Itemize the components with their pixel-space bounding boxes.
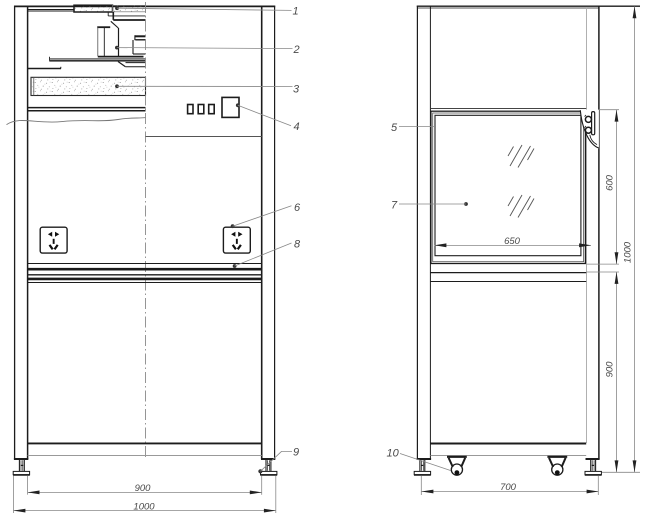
svg-text:1000: 1000 (133, 501, 155, 512)
svg-text:900: 900 (135, 483, 152, 494)
svg-text:1000: 1000 (623, 241, 634, 263)
svg-text:9: 9 (293, 447, 299, 459)
svg-text:650: 650 (504, 236, 521, 247)
svg-text:3: 3 (293, 83, 300, 95)
svg-text:7: 7 (391, 200, 398, 212)
svg-text:1: 1 (293, 6, 299, 18)
svg-text:10: 10 (387, 447, 400, 459)
svg-text:5: 5 (391, 122, 398, 134)
svg-text:700: 700 (500, 482, 517, 493)
svg-text:4: 4 (294, 121, 300, 133)
svg-text:8: 8 (294, 239, 301, 251)
svg-text:6: 6 (294, 202, 301, 214)
svg-text:2: 2 (293, 44, 300, 56)
svg-text:900: 900 (604, 361, 615, 378)
svg-text:600: 600 (604, 174, 615, 191)
